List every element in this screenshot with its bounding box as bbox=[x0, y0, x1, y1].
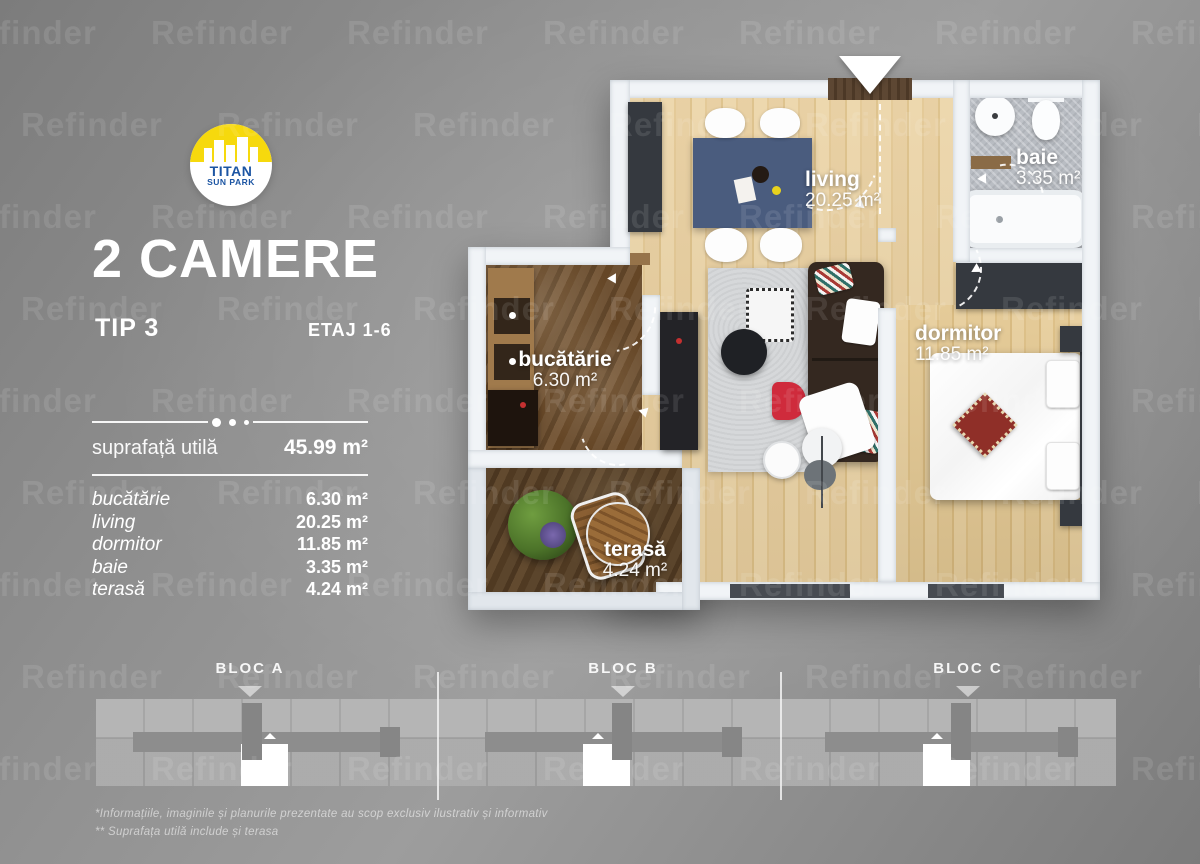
chevron-down-icon bbox=[956, 686, 980, 697]
wall-left-upper bbox=[610, 80, 630, 265]
table-row: terasă 4.24 m² bbox=[92, 579, 368, 602]
unit-marker-icon bbox=[931, 733, 943, 739]
plan-label-dormitor: dormitor 11.85 m² bbox=[915, 322, 1001, 366]
watermark: Refinder bbox=[1131, 566, 1200, 604]
bloc-separator bbox=[780, 672, 782, 800]
bloc-b-stairs bbox=[612, 703, 632, 760]
plan-label-living: living 20.25 m² bbox=[805, 168, 880, 212]
bloc-separator bbox=[437, 672, 439, 800]
usable-area-label: suprafață utilă bbox=[92, 437, 218, 460]
floor-range-label: ETAJ 1-6 bbox=[308, 320, 392, 341]
room-area-table: bucătărie 6.30 m² living 20.25 m² dormit… bbox=[92, 489, 368, 602]
wall-bottom bbox=[656, 582, 1100, 600]
dining-chair bbox=[705, 228, 747, 262]
table-divider bbox=[92, 474, 368, 476]
table-plate bbox=[752, 166, 769, 183]
table-row: living 20.25 m² bbox=[92, 512, 368, 535]
watermark: Refinder bbox=[935, 14, 1077, 52]
bloc-c-label: BLOC C bbox=[868, 660, 1068, 677]
logo-building-icon bbox=[237, 137, 248, 162]
watermark: Refinder bbox=[151, 14, 293, 52]
usable-area-row: suprafață utilă 45.99 m² bbox=[92, 436, 368, 460]
dormitor-window bbox=[928, 584, 1004, 598]
logo-name: TITAN bbox=[190, 163, 272, 179]
dining-chair bbox=[760, 228, 802, 262]
plan-label-baie: baie 3.35 m² bbox=[1016, 146, 1080, 190]
watermark: Refinder bbox=[1131, 382, 1200, 420]
entrance-arrow-icon bbox=[839, 56, 901, 94]
bloc-b-corridor-end bbox=[722, 727, 742, 757]
wall-kitchen-top bbox=[468, 247, 630, 265]
sink-drain bbox=[992, 113, 998, 119]
page-title: 2 CAMERE bbox=[92, 228, 379, 290]
logo-building-icon bbox=[204, 148, 212, 162]
watermark: Refinder bbox=[0, 566, 97, 604]
watermark: Refinder bbox=[1131, 14, 1200, 52]
plan-label-bucatarie: bucătărie 6.30 m² bbox=[490, 348, 640, 392]
table-row: dormitor 11.85 m² bbox=[92, 534, 368, 557]
bloc-c-corridor-end bbox=[1058, 727, 1078, 757]
plan-label-terasa: terasă 4.24 m² bbox=[560, 538, 710, 582]
logo-building-icon bbox=[250, 147, 258, 162]
wall-kitchen-terrace bbox=[468, 450, 682, 468]
table-row: baie 3.35 m² bbox=[92, 557, 368, 580]
logo-building-icon bbox=[226, 145, 235, 162]
chevron-down-icon bbox=[238, 686, 262, 697]
floor-lamp-stem bbox=[821, 436, 823, 508]
table-row: bucătărie 6.30 m² bbox=[92, 489, 368, 512]
watermark: Refinder bbox=[0, 14, 97, 52]
chevron-down-icon bbox=[611, 686, 635, 697]
dining-chair bbox=[705, 108, 745, 138]
bed-pillow bbox=[1046, 442, 1080, 490]
usable-area-value: 45.99 m² bbox=[284, 436, 368, 460]
cabinet-knob bbox=[509, 312, 516, 319]
terrace-rail-bottom bbox=[468, 592, 700, 610]
watermark: Refinder bbox=[1131, 198, 1200, 236]
footnote-line-2: ** Suprafața utilă include și terasa bbox=[95, 826, 278, 838]
tv-unit bbox=[660, 312, 698, 450]
kitchen-oven bbox=[488, 390, 538, 446]
living-closet bbox=[628, 102, 662, 232]
unit-marker-icon bbox=[592, 733, 604, 739]
bloc-a-corridor-end bbox=[380, 727, 400, 757]
apartment-type-label: TIP 3 bbox=[95, 314, 159, 343]
wall-living-dormitor-stub bbox=[878, 228, 896, 242]
unit-marker-icon bbox=[264, 733, 276, 739]
couch-seam bbox=[812, 358, 880, 361]
living-window bbox=[730, 584, 850, 598]
watermark: Refinder bbox=[0, 382, 97, 420]
logo-building-icon bbox=[214, 140, 224, 162]
watermark: Refinder bbox=[21, 658, 163, 696]
watermark: Refinder bbox=[543, 14, 685, 52]
white-pillow bbox=[841, 298, 881, 346]
tv-light bbox=[676, 338, 682, 344]
wall-living-dormitor bbox=[878, 308, 896, 582]
flyer-page: TITAN SUN PARK 2 CAMERE TIP 3 ETAJ 1-6 s… bbox=[0, 0, 1200, 864]
watermark: Refinder bbox=[0, 750, 97, 788]
oven-light bbox=[520, 402, 526, 408]
footnote-line-1: *Informațiile, imaginile și planurile pr… bbox=[95, 808, 548, 820]
bloc-a-stairs bbox=[242, 703, 262, 760]
bloc-a-label: BLOC A bbox=[150, 660, 350, 677]
wall-right bbox=[1082, 80, 1100, 600]
watermark: Refinder bbox=[0, 198, 97, 236]
dotted-divider bbox=[92, 412, 368, 432]
side-table bbox=[763, 441, 801, 479]
watermark: Refinder bbox=[739, 14, 881, 52]
floor-lamp-base bbox=[804, 460, 836, 490]
watermark: Refinder bbox=[21, 106, 163, 144]
bloc-c-stairs bbox=[951, 703, 971, 760]
bed-pillow bbox=[1046, 360, 1080, 408]
logo-subname: SUN PARK bbox=[190, 177, 272, 187]
toilet bbox=[1032, 100, 1060, 140]
wall-kitchen-left bbox=[468, 247, 486, 468]
watermark: Refinder bbox=[347, 14, 489, 52]
terrace-rail-left bbox=[468, 468, 486, 610]
bloc-b-label: BLOC B bbox=[523, 660, 723, 677]
floor-plan: living 20.25 m² baie 3.35 m² dormitor 11… bbox=[460, 50, 1120, 615]
coffee-table bbox=[721, 329, 767, 375]
watermark: Refinder bbox=[1131, 750, 1200, 788]
titan-sun-park-logo: TITAN SUN PARK bbox=[190, 124, 272, 206]
